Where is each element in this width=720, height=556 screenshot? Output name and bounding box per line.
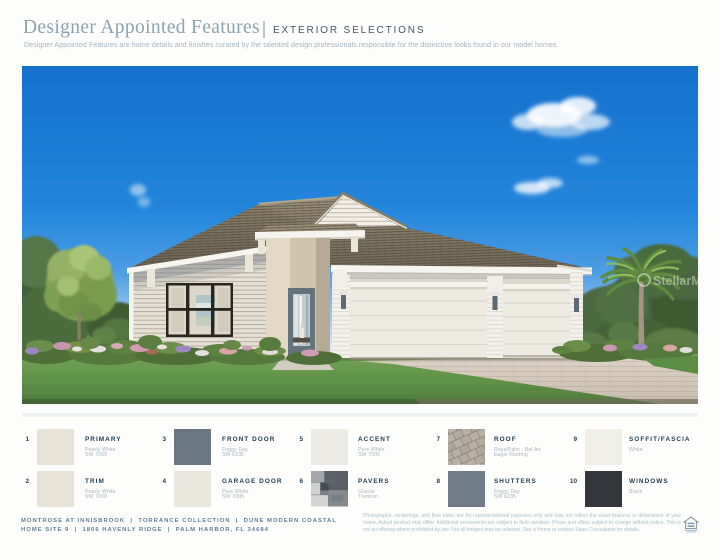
svg-text:StellarMLS: StellarMLS <box>653 274 698 288</box>
